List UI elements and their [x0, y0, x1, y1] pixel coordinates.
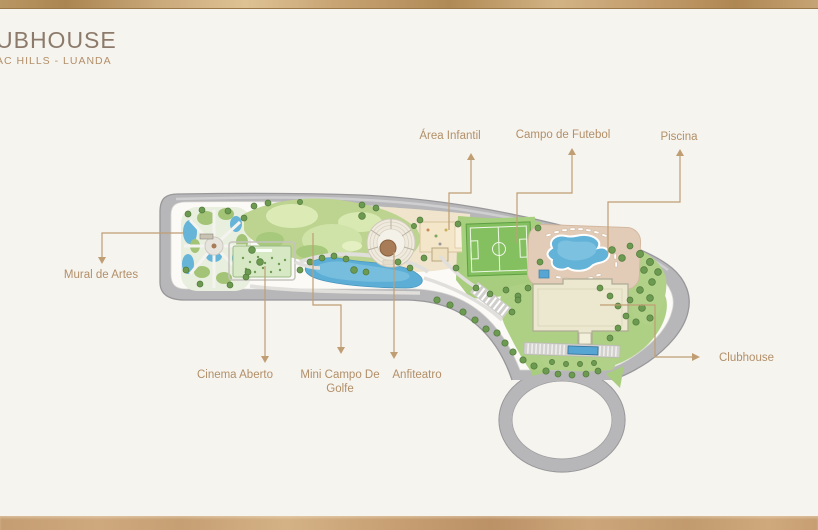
label-campo-de-futebol: Campo de Futebol	[513, 128, 613, 142]
label-anfiteatro: Anfiteatro	[372, 368, 462, 382]
label-clubhouse: Clubhouse	[719, 351, 809, 365]
page: { "header": { "title": "UBHOUSE", "subti…	[0, 0, 818, 530]
label-piscina: Piscina	[639, 130, 719, 144]
roundabout-road	[499, 368, 625, 472]
football-field	[461, 217, 537, 282]
anfiteatro-structure	[367, 219, 415, 267]
label-mini-campo-line1: Mini Campo De	[300, 369, 379, 381]
label-cinema-aberto: Cinema Aberto	[185, 368, 285, 382]
label-mural-de-artes: Mural de Artes	[51, 268, 151, 282]
site-plan-map	[0, 0, 818, 530]
label-mini-campo-line2: Golfe	[326, 383, 354, 395]
label-area-infantil: Área Infantil	[400, 129, 500, 143]
